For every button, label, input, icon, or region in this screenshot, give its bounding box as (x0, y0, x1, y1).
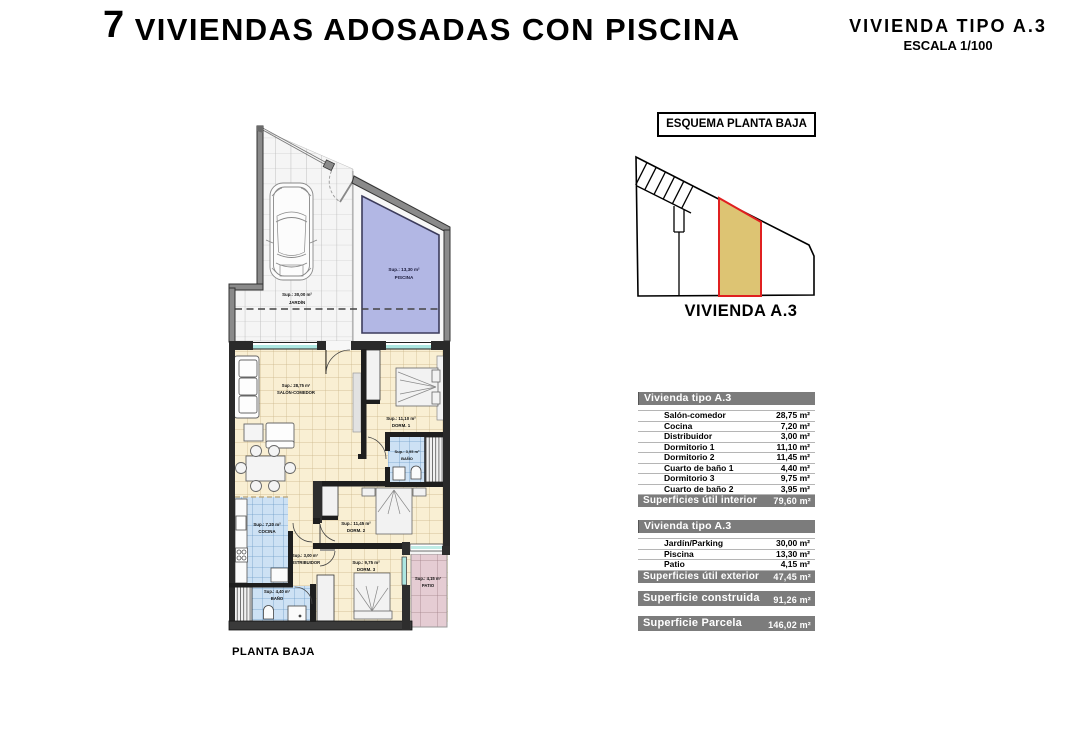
svg-text:SALÓN-COMEDOR: SALÓN-COMEDOR (277, 390, 315, 395)
svg-text:BAÑO: BAÑO (271, 596, 284, 601)
svg-text:DORM. 3: DORM. 3 (357, 567, 376, 572)
svg-text:Sup.: 4,40 m²: Sup.: 4,40 m² (264, 589, 291, 594)
svg-text:Sup.: 11,10 m²: Sup.: 11,10 m² (386, 416, 416, 421)
svg-text:Sup.: 30,00 m²: Sup.: 30,00 m² (282, 292, 312, 297)
svg-text:Sup.: 3,95 m²: Sup.: 3,95 m² (395, 449, 421, 454)
svg-text:Sup.: 13,30 m²: Sup.: 13,30 m² (388, 267, 420, 272)
svg-text:Sup.: 7,20 m²: Sup.: 7,20 m² (253, 522, 281, 527)
svg-text:BAÑO: BAÑO (401, 456, 413, 461)
svg-text:Sup.: 3,00 m²: Sup.: 3,00 m² (292, 553, 319, 558)
svg-text:Sup.: 4,15 m²: Sup.: 4,15 m² (415, 576, 442, 581)
svg-text:DISTRIBUIDOR: DISTRIBUIDOR (290, 560, 320, 565)
svg-text:COCINA: COCINA (258, 529, 276, 534)
svg-text:Sup.: 11,45 m²: Sup.: 11,45 m² (341, 521, 371, 526)
svg-text:DORM. 2: DORM. 2 (347, 528, 366, 533)
svg-text:PISCINA: PISCINA (395, 275, 414, 280)
svg-text:JARDÍN: JARDÍN (289, 300, 305, 305)
svg-text:Sup.: 9,75 m²: Sup.: 9,75 m² (352, 560, 380, 565)
svg-text:DORM. 1: DORM. 1 (392, 423, 411, 428)
svg-text:PATIO: PATIO (422, 583, 435, 588)
svg-text:Sup.: 28,75 m²: Sup.: 28,75 m² (282, 383, 311, 388)
